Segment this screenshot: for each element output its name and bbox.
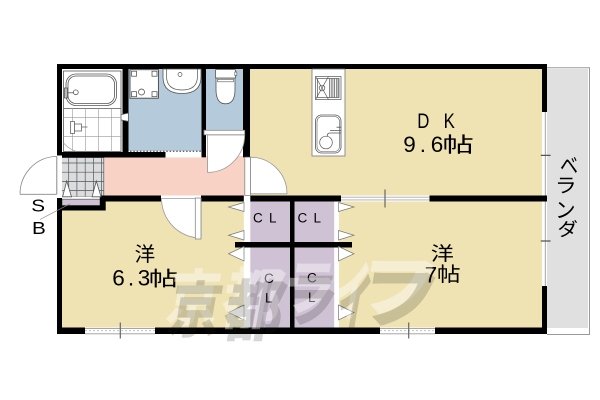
svg-text:6.3: 6.3 [112, 266, 150, 291]
svg-text:B: B [32, 218, 46, 238]
svg-text:9.6: 9.6 [403, 132, 443, 157]
svg-text:S: S [31, 196, 45, 216]
